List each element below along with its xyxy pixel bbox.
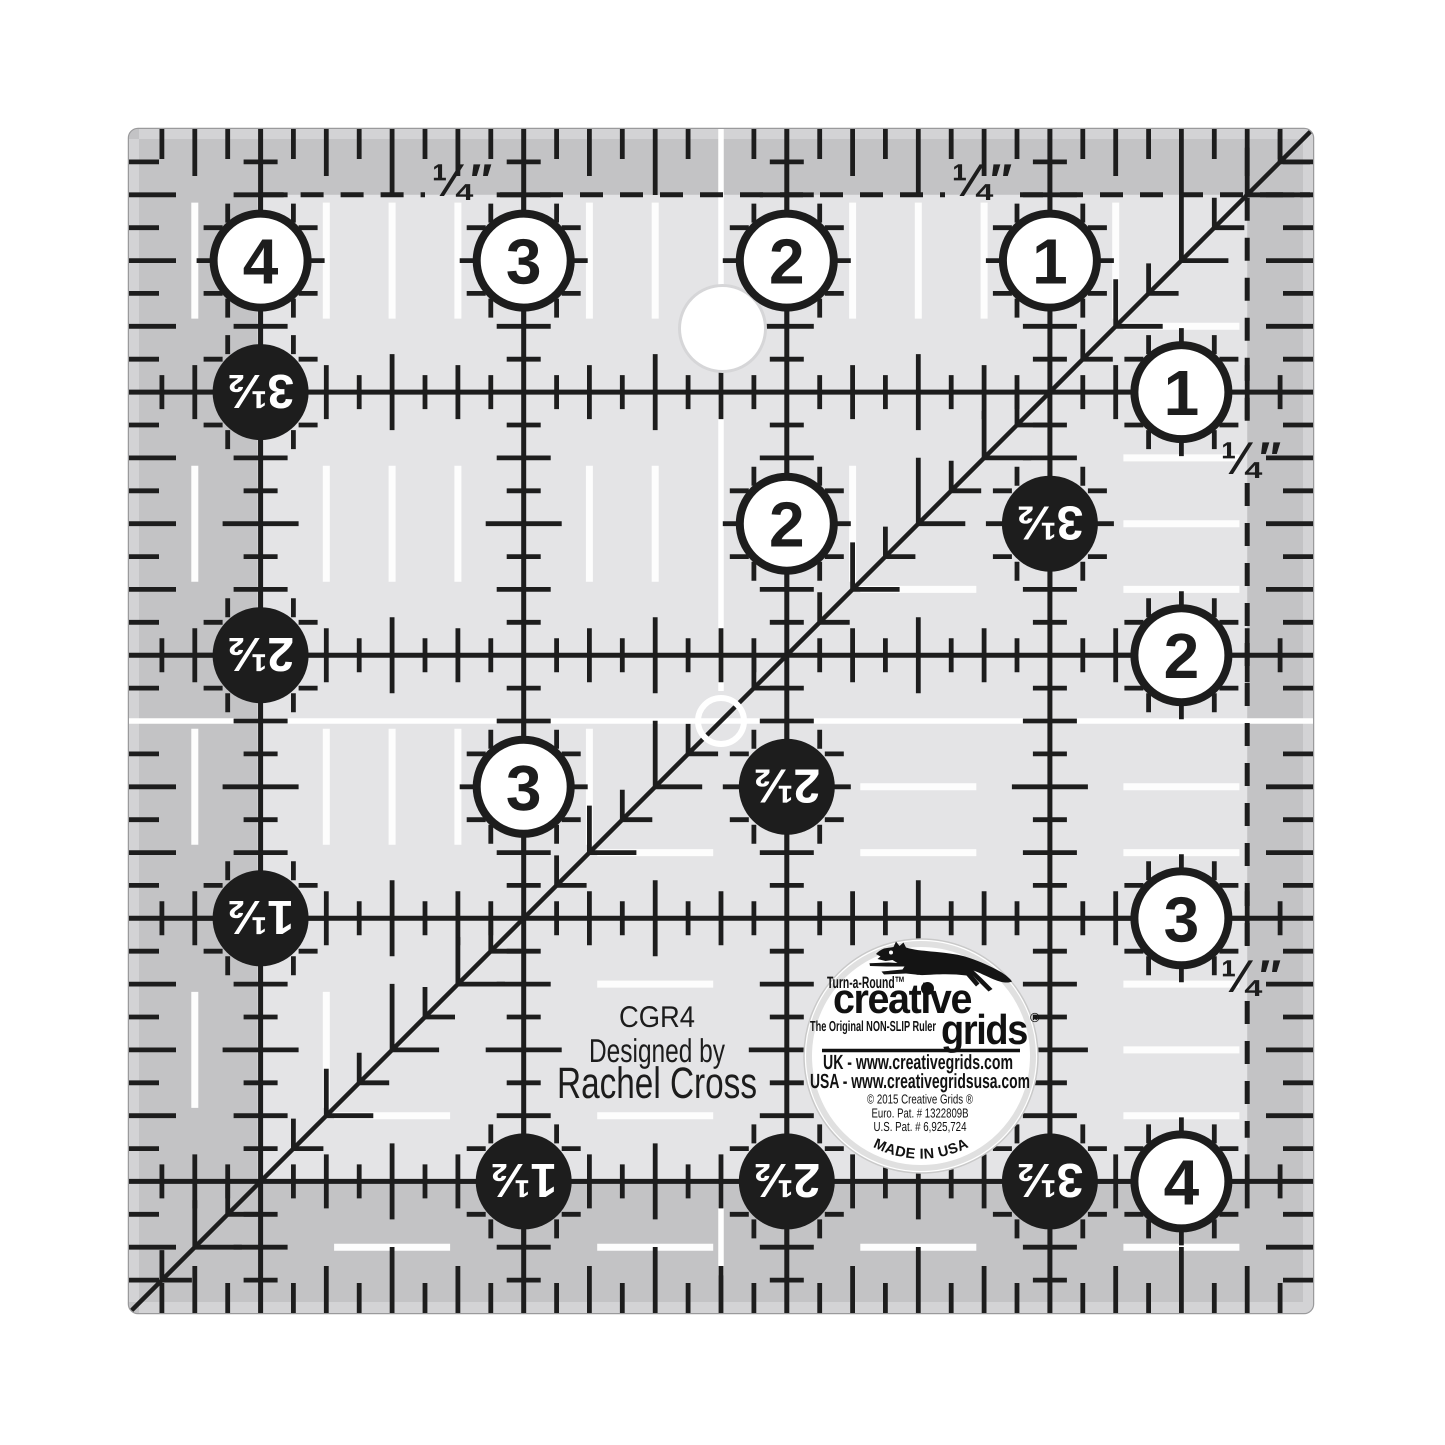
svg-text:3½: 3½: [1017, 1153, 1084, 1206]
svg-text:3: 3: [506, 226, 542, 298]
svg-text:3: 3: [1164, 883, 1200, 955]
svg-text:¼″: ¼″: [952, 154, 1012, 206]
svg-text:U.S. Pat. # 6,925,724: U.S. Pat. # 6,925,724: [874, 1119, 967, 1134]
svg-text:1½: 1½: [490, 1153, 557, 1206]
svg-text:The Original NON-SLIP Ruler: The Original NON-SLIP Ruler: [810, 1019, 936, 1035]
svg-text:®: ®: [1030, 1010, 1040, 1025]
svg-text:¼″: ¼″: [432, 154, 492, 206]
svg-text:2: 2: [1164, 620, 1200, 692]
svg-text:3½: 3½: [1017, 495, 1084, 548]
svg-text:2½: 2½: [227, 627, 294, 680]
svg-text:4: 4: [1164, 1146, 1200, 1218]
svg-text:© 2015 Creative Grids ®: © 2015 Creative Grids ®: [867, 1092, 973, 1107]
svg-text:3: 3: [506, 752, 542, 824]
svg-text:grids: grids: [941, 1006, 1027, 1053]
svg-text:2½: 2½: [753, 759, 820, 812]
svg-text:2: 2: [769, 489, 805, 561]
svg-text:Rachel Cross: Rachel Cross: [557, 1059, 757, 1108]
svg-text:1: 1: [1164, 357, 1200, 429]
svg-text:¼″: ¼″: [1221, 432, 1281, 484]
svg-text:CGR4: CGR4: [619, 1001, 695, 1034]
svg-text:1½: 1½: [227, 890, 294, 943]
svg-text:3½: 3½: [227, 364, 294, 417]
svg-text:¼″: ¼″: [1221, 950, 1281, 1002]
svg-text:USA - www.creativegridsusa.com: USA - www.creativegridsusa.com: [810, 1070, 1030, 1093]
svg-text:4: 4: [243, 226, 279, 298]
svg-text:2: 2: [769, 226, 805, 298]
svg-text:1: 1: [1032, 226, 1068, 298]
svg-text:2½: 2½: [753, 1153, 820, 1206]
